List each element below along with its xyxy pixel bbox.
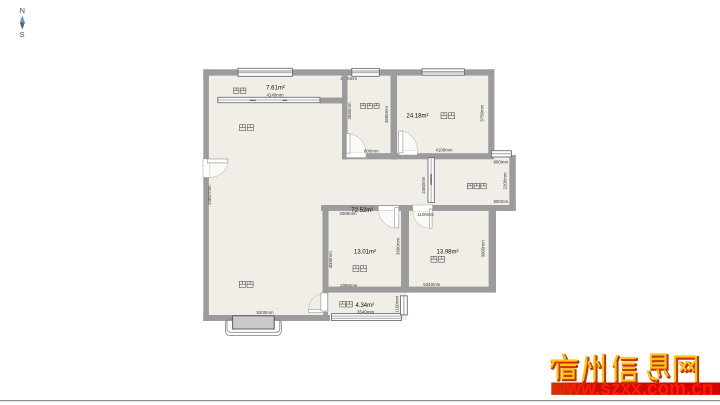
svg-text:900mm: 900mm xyxy=(493,159,508,164)
svg-text:4000mm: 4000mm xyxy=(328,251,333,268)
svg-text:4100mm: 4100mm xyxy=(435,148,452,153)
svg-text:72.52m²: 72.52m² xyxy=(351,208,373,214)
svg-text:900mm: 900mm xyxy=(493,199,508,204)
svg-text:3655mm: 3655mm xyxy=(384,106,389,123)
svg-text:1100mm: 1100mm xyxy=(417,212,434,217)
svg-text:5340mm: 5340mm xyxy=(423,282,440,287)
svg-text:24.18m²: 24.18m² xyxy=(406,113,428,119)
svg-text:3750mm: 3750mm xyxy=(479,104,484,121)
svg-text:S: S xyxy=(19,30,24,39)
svg-text:1100mm: 1100mm xyxy=(395,295,400,312)
svg-text:2200mm: 2200mm xyxy=(502,172,507,189)
svg-text:5200mm: 5200mm xyxy=(256,310,273,315)
svg-text:2360mm: 2360mm xyxy=(421,176,426,193)
svg-text:N: N xyxy=(20,6,25,15)
svg-text:13067mm: 13067mm xyxy=(207,185,212,205)
svg-text:2090mm: 2090mm xyxy=(340,283,357,288)
svg-text:4140mm: 4140mm xyxy=(266,93,283,98)
svg-text:13.01m²: 13.01m² xyxy=(354,249,376,255)
svg-text:7.61m²: 7.61m² xyxy=(266,85,285,91)
svg-text:3600mm: 3600mm xyxy=(480,240,485,257)
svg-text:3540mm: 3540mm xyxy=(357,309,374,314)
svg-text:3600mm: 3600mm xyxy=(396,238,401,255)
svg-text:13.98m²: 13.98m² xyxy=(436,249,458,255)
svg-text:4.34m²: 4.34m² xyxy=(355,303,374,309)
svg-text:800mm: 800mm xyxy=(364,148,379,153)
svg-text:3550mm: 3550mm xyxy=(347,102,352,119)
